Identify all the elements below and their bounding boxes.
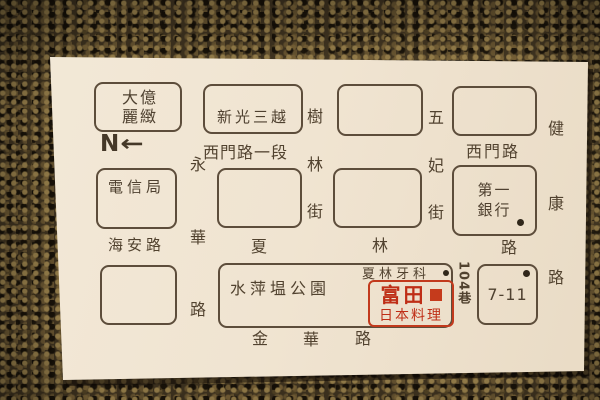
street-shulin-column: 樹 林 街 (306, 109, 324, 220)
department-store-box: 新光三越 (203, 84, 303, 134)
street-jiankang-char-2: 康 (548, 196, 564, 212)
block-box-1 (337, 84, 423, 136)
street-yonghua-char-3: 路 (190, 302, 206, 318)
street-wufei-char-3: 街 (428, 205, 444, 221)
street-ximen-sec1-label: 西門路一段 (203, 145, 288, 161)
restaurant-subtitle-label: 日本料理 (370, 309, 452, 323)
street-wufei-column: 五 妃 街 (427, 110, 445, 221)
hotel-label-line1: 大億 (122, 89, 158, 107)
street-jinhua-char-3: 路 (355, 331, 371, 347)
street-shulin-char-3: 街 (307, 204, 323, 220)
street-xialin-char-2: 林 (372, 238, 388, 254)
bank-dot-marker (517, 219, 524, 226)
street-jiankang-char-1: 健 (548, 121, 564, 137)
street-wufei-char-1: 五 (428, 110, 444, 126)
telecom-label: 電信局 (98, 170, 175, 227)
restaurant-highlight-box: 富田 日本料理 (368, 280, 454, 327)
street-yonghua-char-1: 永 (190, 157, 206, 173)
street-xialin-char-3: 路 (501, 240, 517, 256)
telecom-box: 電信局 (96, 168, 177, 229)
street-jinhua-char-1: 金 (252, 331, 268, 347)
street-yonghua-char-2: 華 (190, 230, 206, 246)
department-store-label: 新光三越 (205, 86, 301, 132)
street-wufei-char-2: 妃 (428, 158, 444, 174)
north-arrow-icon: ← (120, 136, 143, 154)
block-box-2 (452, 86, 537, 136)
street-ximen-label: 西門路 (466, 144, 520, 160)
street-jinhua-char-2: 華 (303, 332, 319, 348)
street-shulin-char-2: 林 (307, 157, 323, 173)
compass-n-label: N (100, 133, 119, 156)
dental-dot-marker (443, 270, 449, 276)
business-card-map: N ← 大億 麗緻 新光三越 電信局 第一 銀行 (0, 0, 600, 400)
seven-eleven-dot-marker (523, 270, 530, 277)
block-box-3 (217, 168, 302, 228)
restaurant-location-marker (430, 289, 442, 301)
street-haian-label: 海安路 (108, 238, 165, 253)
hotel-box: 大億 麗緻 (94, 82, 182, 132)
street-xialin-char-1: 夏 (251, 239, 267, 255)
park-label: 水萍塭公園 (230, 281, 330, 297)
street-jiankang-column: 健 康 路 (547, 121, 565, 286)
seven-eleven-box: 7-11 (477, 264, 538, 325)
photo-scene: N ← 大億 麗緻 新光三越 電信局 第一 銀行 (0, 0, 600, 400)
street-jiankang-char-3: 路 (548, 270, 564, 286)
bank-label-line1: 第一 (477, 182, 511, 199)
block-box-4 (333, 168, 422, 228)
street-lane104-label: 104巷 (455, 261, 469, 305)
bank-label-line2: 銀行 (477, 202, 511, 219)
compass-north: N ← (100, 133, 144, 156)
park-restaurant-box: 水萍塭公園 夏林牙科 富田 日本料理 (218, 263, 453, 328)
hotel-label-line2: 麗緻 (122, 108, 158, 126)
restaurant-name-label: 富田 (381, 285, 427, 305)
block-box-5 (100, 265, 177, 325)
bank-box: 第一 銀行 (452, 165, 537, 236)
street-shulin-char-1: 樹 (307, 109, 323, 125)
street-yonghua-column: 永 華 路 (189, 157, 207, 318)
